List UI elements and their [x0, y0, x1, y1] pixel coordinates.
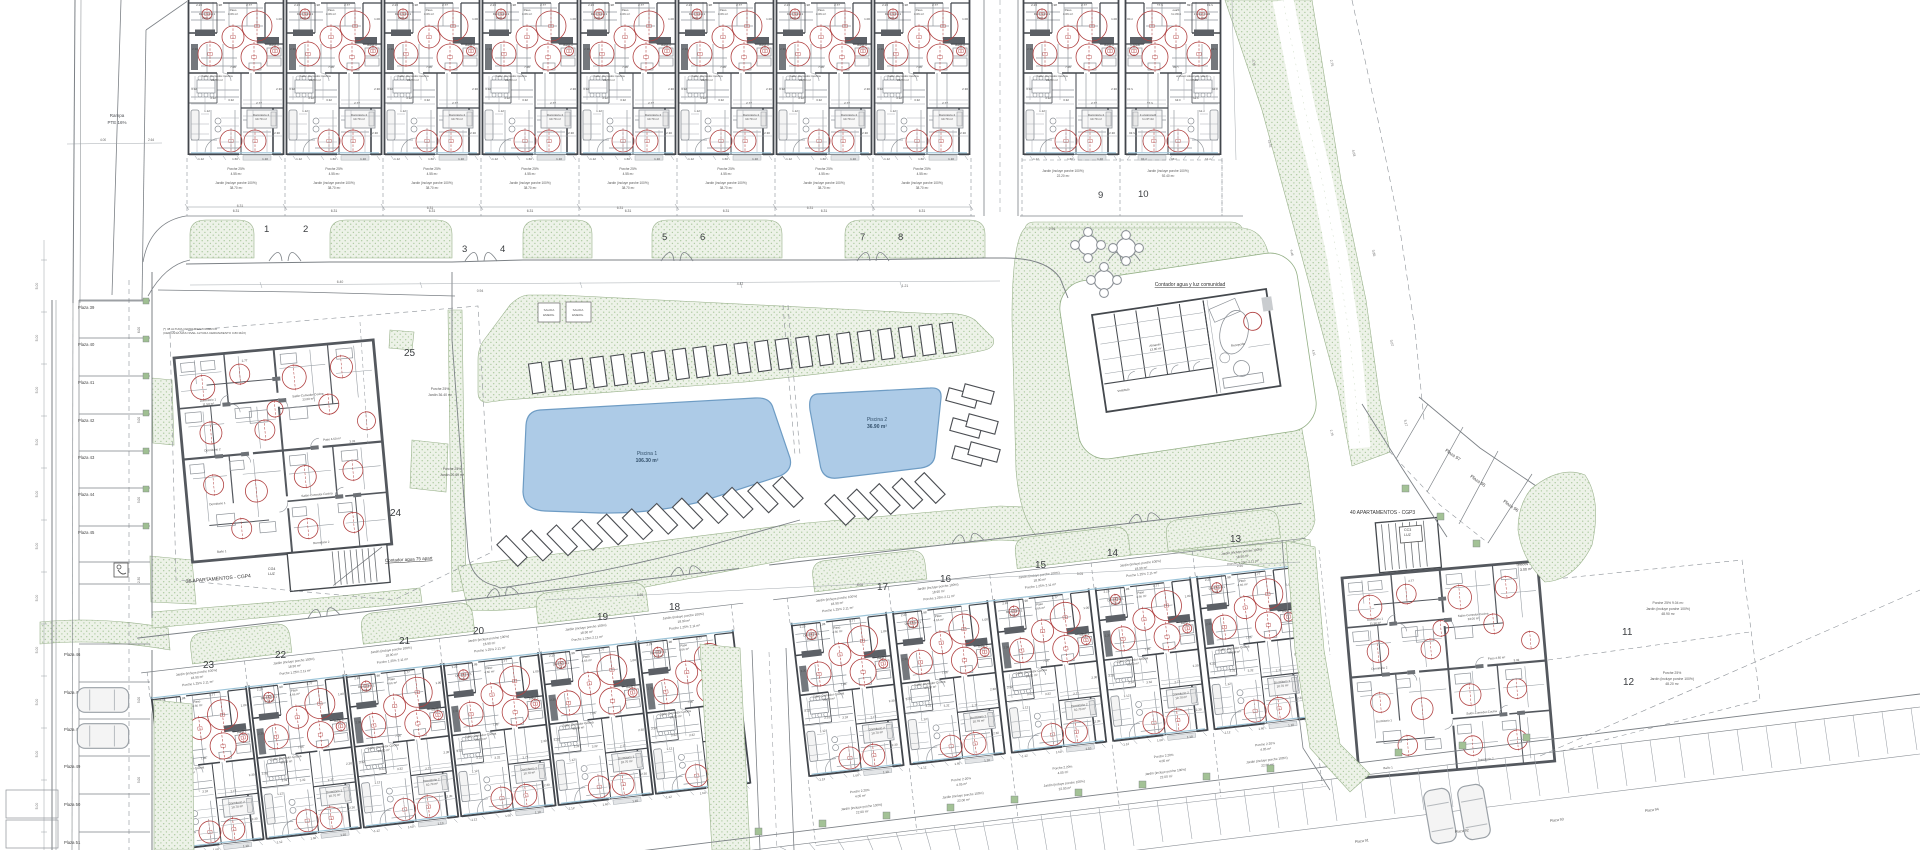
svg-text:11: 11 [1622, 627, 1633, 638]
svg-text:6.00: 6.00 [137, 327, 141, 333]
svg-text:Porche 25%: Porche 25% [423, 167, 441, 171]
svg-text:Contador agua y luz comunidad: Contador agua y luz comunidad [1155, 282, 1226, 288]
svg-text:7: 7 [860, 232, 865, 243]
svg-text:17: 17 [877, 582, 889, 593]
svg-text:Jardín (incluye porche 100%): Jardín (incluye porche 100%) [411, 181, 452, 185]
svg-text:2.64: 2.64 [148, 138, 154, 142]
svg-text:5: 5 [662, 232, 667, 243]
svg-text:Plaza 50: Plaza 50 [64, 802, 81, 807]
svg-text:38.70 m²: 38.70 m² [328, 186, 341, 190]
svg-text:Jardín (incluye porche 100%): Jardín (incluye porche 100%) [1650, 677, 1694, 681]
svg-text:2.94: 2.94 [1049, 227, 1056, 231]
svg-text:5.00: 5.00 [35, 439, 39, 446]
svg-text:(CERCANÍA MÁS NIVEL ALTURA CER: (CERCANÍA MÁS NIVEL ALTURA CERRAMIENTO 0… [163, 331, 246, 335]
svg-text:Plaza 41: Plaza 41 [78, 380, 95, 385]
svg-text:2.30: 2.30 [137, 577, 141, 583]
svg-text:5.00: 5.00 [35, 803, 39, 810]
svg-text:Jardín (incluye porche 100%): Jardín (incluye porche 100%) [1042, 169, 1083, 173]
svg-text:Jardín (incluye porche 100%): Jardín (incluye porche 100%) [803, 181, 844, 185]
svg-text:22.20 m²: 22.20 m² [1057, 174, 1070, 178]
svg-text:5.00: 5.00 [137, 777, 141, 783]
svg-text:Plaza 51: Plaza 51 [64, 840, 81, 845]
svg-text:4.55 m²: 4.55 m² [231, 172, 242, 176]
svg-text:Porche 25%: Porche 25% [913, 167, 931, 171]
svg-text:5.00: 5.00 [35, 699, 39, 706]
svg-text:1: 1 [264, 224, 269, 235]
svg-text:5.00: 5.00 [35, 543, 39, 550]
svg-text:4.55 m²: 4.55 m² [329, 172, 340, 176]
svg-text:18: 18 [669, 602, 681, 613]
svg-text:Porche 25%: Porche 25% [443, 467, 461, 471]
svg-text:Jardín 20.60 m²: Jardín 20.60 m² [440, 473, 465, 477]
svg-text:38.70 m²: 38.70 m² [230, 186, 243, 190]
svg-text:Jardín (incluye porche 100%): Jardín (incluye porche 100%) [215, 181, 256, 185]
svg-text:Jardín (incluye porche 100%): Jardín (incluye porche 100%) [313, 181, 354, 185]
svg-text:Jardín (incluye porche 100%): Jardín (incluye porche 100%) [509, 181, 550, 185]
svg-text:Plaza 46: Plaza 46 [64, 652, 81, 657]
svg-text:38.70 m²: 38.70 m² [720, 186, 733, 190]
svg-text:13: 13 [1230, 534, 1242, 545]
svg-text:2.50: 2.50 [1237, 564, 1243, 568]
svg-text:4.55 m²: 4.55 m² [525, 172, 536, 176]
svg-text:38.70 m²: 38.70 m² [524, 186, 537, 190]
svg-text:38.70 m²: 38.70 m² [818, 186, 831, 190]
svg-text:EMERG.: EMERG. [572, 313, 584, 317]
svg-text:Jardín (incluye porche 100%): Jardín (incluye porche 100%) [705, 181, 746, 185]
svg-text:5.00: 5.00 [35, 491, 39, 498]
svg-text:Jardín 36.40 m²: Jardín 36.40 m² [428, 393, 453, 397]
svg-text:Piscina 2: Piscina 2 [867, 417, 888, 423]
svg-text:Porche 25%: Porche 25% [431, 387, 449, 391]
svg-text:PTE 16%: PTE 16% [107, 120, 126, 125]
svg-text:8: 8 [898, 232, 903, 243]
svg-text:SALIDA: SALIDA [573, 308, 584, 312]
svg-text:Plaza 44: Plaza 44 [78, 492, 95, 497]
svg-text:5.00: 5.00 [35, 387, 39, 394]
svg-text:4.55 m²: 4.55 m² [623, 172, 634, 176]
svg-text:Jardín (incluye porche 100%): Jardín (incluye porche 100%) [1147, 169, 1188, 173]
svg-text:106.30 m²: 106.30 m² [636, 458, 659, 464]
svg-text:6.31: 6.31 [807, 206, 814, 210]
svg-text:92.40 m²: 92.40 m² [1162, 174, 1175, 178]
svg-text:Porche 25%: Porche 25% [619, 167, 637, 171]
svg-text:5.00: 5.00 [137, 497, 141, 503]
svg-text:Jardín (incluye porche 100%): Jardín (incluye porche 100%) [901, 181, 942, 185]
svg-text:LUZ: LUZ [1404, 533, 1412, 537]
svg-text:4.55 m²: 4.55 m² [819, 172, 830, 176]
svg-text:Plaza 43: Plaza 43 [78, 455, 95, 460]
svg-text:5.00: 5.00 [35, 283, 39, 290]
svg-text:Porche 25% 9.04 m²: Porche 25% 9.04 m² [1653, 601, 1685, 605]
svg-text:5.00: 5.00 [35, 647, 39, 654]
svg-text:9: 9 [1098, 190, 1103, 201]
svg-text:15: 15 [1035, 560, 1047, 571]
svg-text:1.21: 1.21 [902, 284, 909, 288]
svg-text:0.94: 0.94 [477, 289, 484, 293]
svg-text:2: 2 [303, 224, 308, 235]
svg-text:4: 4 [500, 244, 505, 255]
svg-text:40 APARTAMENTOS - CGP3: 40 APARTAMENTOS - CGP3 [1350, 510, 1415, 516]
svg-text:LUZ: LUZ [268, 572, 276, 576]
svg-text:Porche 25%: Porche 25% [521, 167, 539, 171]
svg-text:Jardín (incluye porche 100%): Jardín (incluye porche 100%) [607, 181, 648, 185]
svg-text:Plaza 49: Plaza 49 [64, 764, 81, 769]
svg-text:48.20 m²: 48.20 m² [1665, 682, 1679, 686]
svg-text:38.70 m²: 38.70 m² [426, 186, 439, 190]
svg-text:8.05: 8.05 [857, 583, 863, 587]
svg-text:6.31: 6.31 [723, 209, 730, 213]
svg-text:6.40: 6.40 [337, 280, 344, 284]
svg-text:5.05: 5.05 [1077, 572, 1083, 576]
svg-text:20: 20 [473, 626, 485, 637]
svg-text:3: 3 [462, 244, 467, 255]
svg-text:6.31: 6.31 [233, 209, 240, 213]
svg-text:48.90 m²: 48.90 m² [1661, 612, 1675, 616]
svg-text:CG4: CG4 [268, 567, 275, 571]
svg-text:24: 24 [390, 508, 402, 519]
svg-text:38.70 m²: 38.70 m² [916, 186, 929, 190]
svg-text:Porche 25%: Porche 25% [325, 167, 343, 171]
svg-text:Plaza 39: Plaza 39 [78, 305, 95, 310]
svg-text:12: 12 [1623, 677, 1635, 688]
svg-text:4.00: 4.00 [100, 138, 106, 142]
svg-text:Porche 25%: Porche 25% [815, 167, 833, 171]
svg-text:21: 21 [399, 636, 411, 647]
svg-text:6.31: 6.31 [821, 209, 828, 213]
svg-text:22: 22 [275, 650, 287, 661]
svg-text:Porche 25%: Porche 25% [717, 167, 735, 171]
svg-text:4.42: 4.42 [737, 282, 744, 286]
svg-text:6.31: 6.31 [919, 209, 926, 213]
svg-text:25: 25 [404, 348, 416, 359]
svg-text:10: 10 [1138, 189, 1149, 200]
svg-text:Jardín (incluye porche 100%): Jardín (incluye porche 100%) [1646, 607, 1690, 611]
svg-text:6.31: 6.31 [527, 209, 534, 213]
svg-text:5.00: 5.00 [137, 697, 141, 703]
svg-text:Plaza 42: Plaza 42 [78, 418, 95, 423]
svg-text:5.00: 5.00 [35, 595, 39, 602]
svg-text:38.70 m²: 38.70 m² [622, 186, 635, 190]
svg-text:4.55 m²: 4.55 m² [917, 172, 928, 176]
svg-text:5.00: 5.00 [35, 751, 39, 758]
svg-text:CC3: CC3 [1404, 528, 1411, 532]
svg-text:4.55 m²: 4.55 m² [721, 172, 732, 176]
svg-text:EMERG.: EMERG. [543, 313, 555, 317]
svg-text:Plaza 45: Plaza 45 [78, 530, 95, 535]
svg-text:6.31: 6.31 [331, 209, 338, 213]
svg-text:6.31: 6.31 [625, 209, 632, 213]
svg-text:6: 6 [700, 232, 705, 243]
svg-text:36.90 m²: 36.90 m² [867, 424, 887, 430]
svg-text:Piscina 1: Piscina 1 [637, 451, 658, 457]
svg-text:6.31: 6.31 [427, 206, 434, 210]
svg-text:5.00: 5.00 [35, 335, 39, 342]
svg-text:5.05: 5.05 [637, 593, 643, 597]
svg-text:Porche 25%: Porche 25% [227, 167, 245, 171]
svg-text:4.55 m²: 4.55 m² [427, 172, 438, 176]
svg-text:6.31: 6.31 [617, 206, 624, 210]
svg-text:5.00: 5.00 [137, 417, 141, 423]
svg-text:14: 14 [1107, 548, 1119, 559]
svg-text:Porche 25%: Porche 25% [1663, 671, 1681, 675]
svg-text:23: 23 [203, 660, 215, 671]
svg-text:Plaza 40: Plaza 40 [78, 342, 95, 347]
svg-text:Rampa: Rampa [110, 113, 125, 118]
svg-text:SALIDA: SALIDA [544, 308, 555, 312]
svg-text:19: 19 [597, 612, 609, 623]
svg-text:6.31: 6.31 [237, 204, 244, 208]
